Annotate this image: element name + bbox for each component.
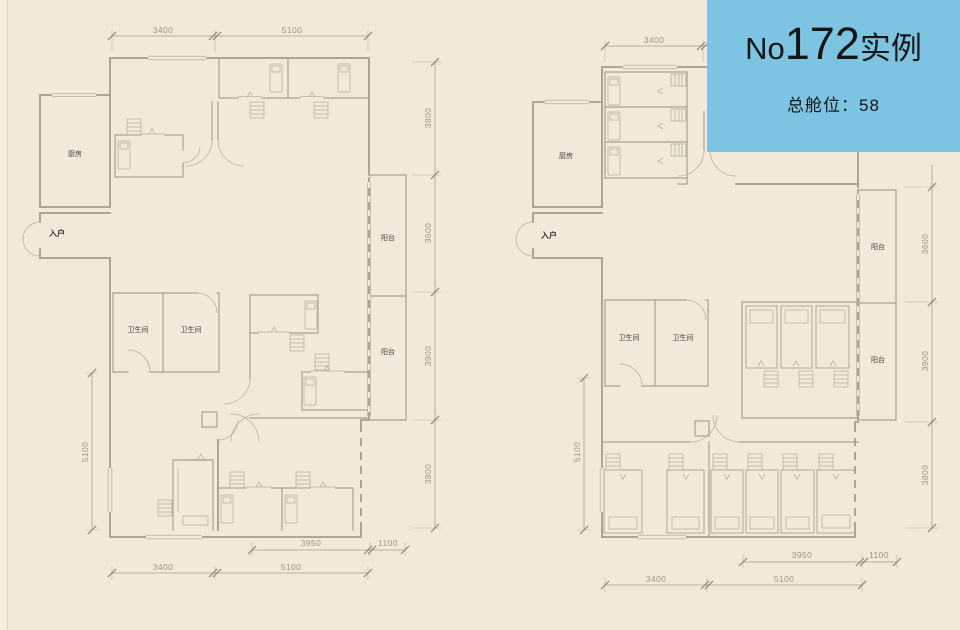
right-plan-balcony-walls [858,190,896,420]
banner-capacity: 总舱位：58 [707,91,960,116]
dim-bottom-outer-1: 3400 [646,574,667,584]
room-label-bath-right: 卫生间 [181,325,202,334]
dim-right-3: 3900 [423,346,433,367]
banner-number: 172 [785,18,860,69]
dim-bottom-outer-1: 3400 [153,562,174,572]
room-label-kitchen: 厨房 [559,151,573,160]
left-plan-interior-walls [113,58,369,530]
page: 厨房 入户 卫生间 卫生间 阳台 阳台 3400 5100 3800 3600 … [0,0,960,630]
dim-right-4: 3800 [423,464,433,485]
shaft-box [695,421,709,436]
dim-bottom-inner-1: 3950 [792,550,813,560]
dim-right-3: 3800 [920,465,930,486]
room-label-entry: 入户 [48,228,65,238]
left-plan-entrance-arrows [149,92,330,487]
dim-bottom-inner-2: 1100 [869,550,889,560]
room-label-balcony-bottom: 阳台 [381,347,395,356]
left-plan-dimensions: 3400 5100 3800 3600 3900 3800 3950 1100 … [80,25,441,580]
left-plan-doors [23,140,259,442]
shaft-box [202,412,217,427]
dim-bottom-outer-2: 5100 [774,574,795,584]
dim-top-1: 3400 [153,25,174,35]
left-plan-ladders [127,102,329,516]
room-label-bath-right: 卫生间 [673,333,694,342]
room-label-balcony-bottom: 阳台 [871,355,885,364]
banner-no-prefix: No [745,31,785,66]
left-plan-exterior-walls [40,58,369,537]
room-label-kitchen: 厨房 [68,149,82,158]
banner-type-label: 实例 [860,31,922,66]
banner-title: No172实例 [707,18,960,81]
dim-top-2: 5100 [282,25,303,35]
room-label-bath-left: 卫生间 [128,325,149,334]
room-label-entry: 入户 [540,230,557,240]
dim-bottom-inner-1: 3950 [301,538,322,548]
right-plan-doors [516,150,740,442]
info-banner: No172实例 总舱位：58 [707,0,960,152]
left-floor-plan: 厨房 入户 卫生间 卫生间 阳台 阳台 3400 5100 3800 3600 … [23,25,441,580]
dim-right-1: 3600 [920,234,930,255]
left-plan-windows [52,56,371,539]
right-plan-capsule-cells [604,306,855,533]
dim-left-1: 5100 [572,442,582,463]
left-plan-capsule-entrance-lips [140,97,345,488]
dim-right-2: 3600 [423,223,433,244]
dim-right-2: 3900 [920,351,930,372]
room-label-balcony-top: 阳台 [381,233,395,242]
dim-bottom-outer-2: 5100 [281,562,302,572]
room-label-bath-left: 卫生间 [619,333,640,342]
dim-left-1: 5100 [80,442,90,463]
room-label-balcony-top: 阳台 [871,242,885,251]
dim-bottom-inner-2: 1100 [378,538,398,548]
dim-right-1: 3800 [423,108,433,129]
left-plan-balcony-walls [369,175,406,420]
left-plan-room-labels: 厨房 入户 卫生间 卫生间 阳台 阳台 [48,149,395,356]
dim-top-1: 3400 [644,35,665,45]
